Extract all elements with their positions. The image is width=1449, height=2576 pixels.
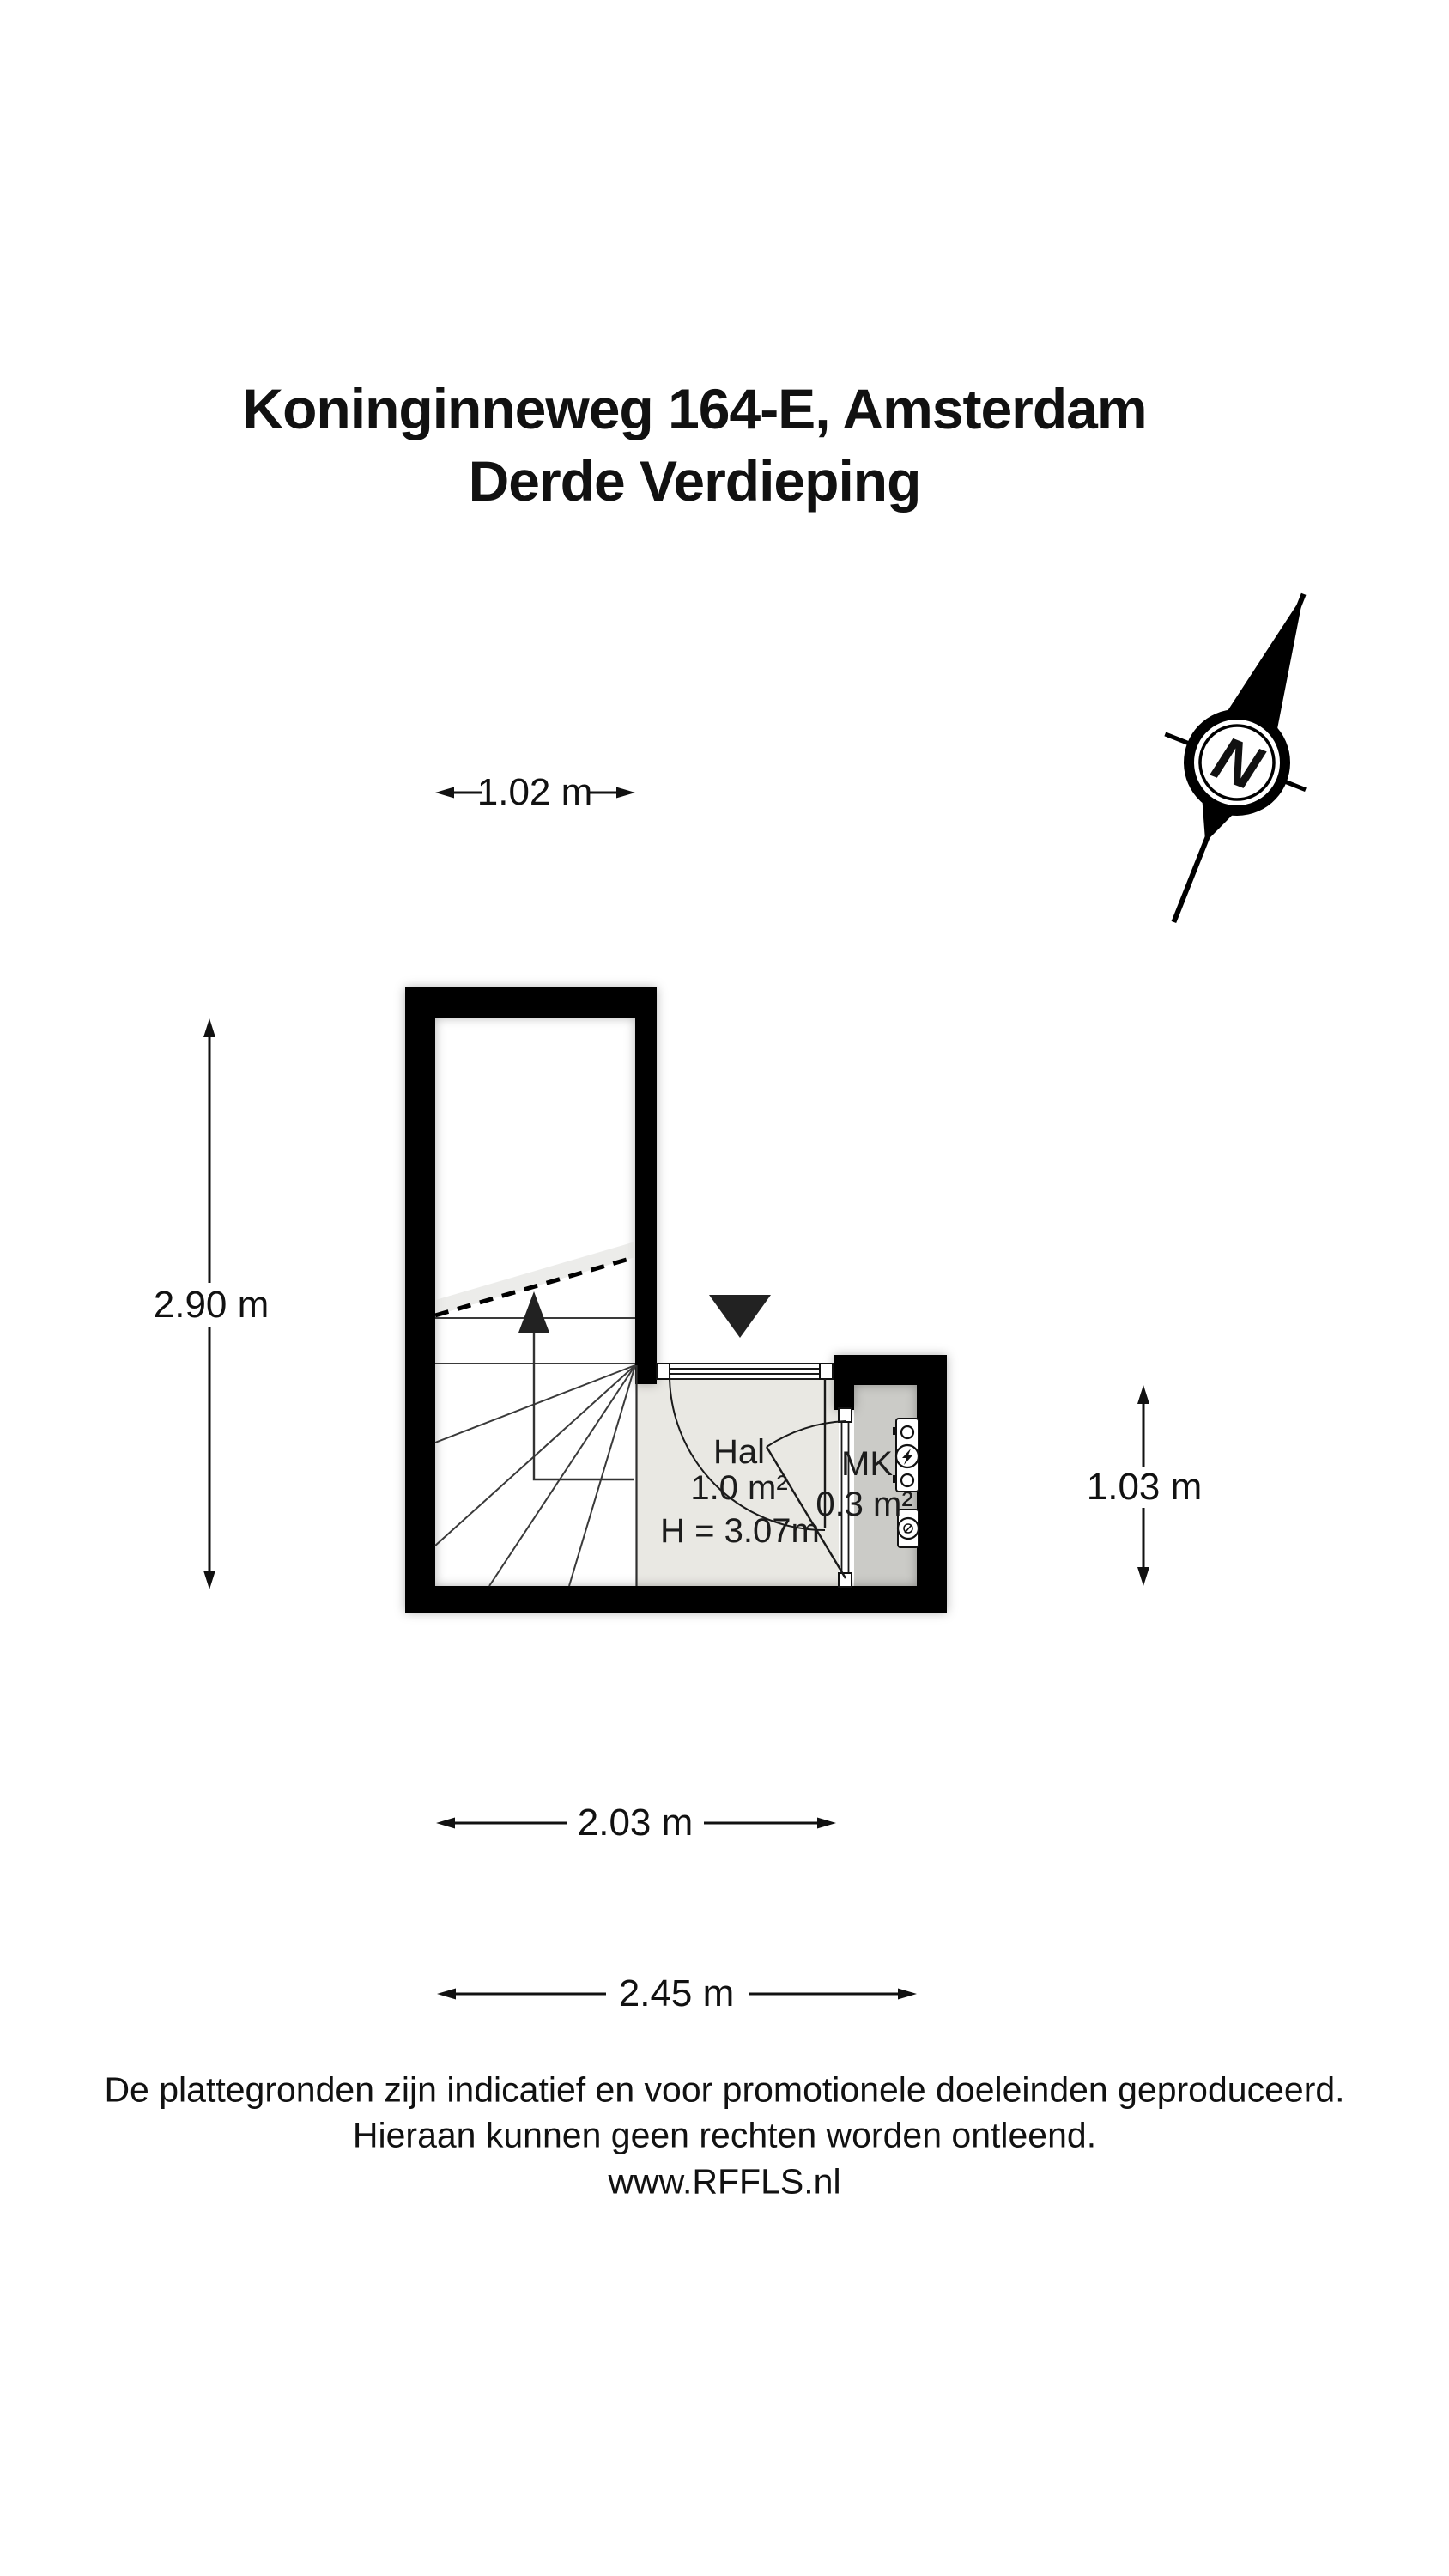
mk-room-area: 0.3 m² (815, 1487, 912, 1522)
hal-room-area: 1.0 m² (690, 1471, 787, 1505)
footer-disclaimer-line2: Hieraan kunnen geen rechten worden ontle… (353, 2118, 1096, 2154)
hal-room-ceiling-height: H = 3.07m (660, 1514, 820, 1548)
dimension-right-label: 1.03 m (1087, 1468, 1203, 1506)
footer-website: www.RFFLS.nl (608, 2165, 840, 2200)
electric-meter-icon (893, 1419, 919, 1492)
stair-treads (435, 1318, 637, 1586)
stairs-up-arrow-icon (518, 1291, 634, 1479)
floorplan-page: Koninginneweg 164-E, Amsterdam Derde Ver… (0, 0, 1449, 2576)
dimension-bottom-outer-label: 2.45 m (619, 1975, 735, 2013)
footer-disclaimer-line1: De plattegronden zijn indicatief en voor… (104, 2073, 1344, 2108)
entrance-arrow-icon (709, 1295, 771, 1338)
dimension-bottom-inner-label: 2.03 m (578, 1804, 694, 1842)
mk-room-name: MK (841, 1447, 893, 1481)
page-title-line1: Koninginneweg 164-E, Amsterdam (242, 380, 1146, 437)
dimension-top-label: 1.02 m (477, 774, 593, 811)
hal-room-name: Hal (713, 1435, 765, 1469)
dimension-left-label: 2.90 m (154, 1286, 270, 1324)
page-title-line2: Derde Verdieping (469, 453, 921, 509)
